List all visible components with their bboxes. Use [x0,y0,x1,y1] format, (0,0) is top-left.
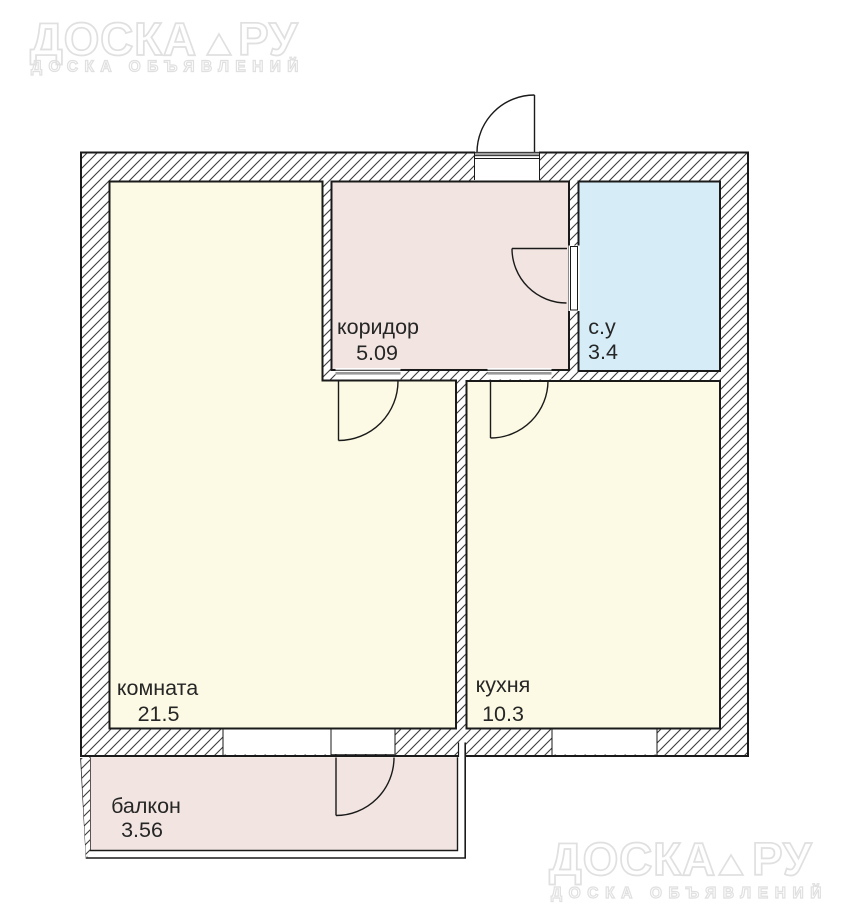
svg-text:с.у: с.у [588,315,616,339]
svg-text:3.56: 3.56 [121,818,163,842]
svg-text:кухня: кухня [476,673,531,697]
svg-text:ДОСКА: ДОСКА [549,833,716,885]
svg-text:21.5: 21.5 [138,702,180,726]
svg-text:ДОСКА: ДОСКА [30,13,197,65]
svg-text:комната: комната [117,676,198,700]
svg-text:коридор: коридор [337,315,419,339]
svg-text:3.4: 3.4 [588,340,618,364]
svg-text:РУ: РУ [238,13,299,65]
svg-text:балкон: балкон [111,794,181,818]
svg-text:5.09: 5.09 [356,341,398,365]
svg-text:РУ: РУ [752,833,813,885]
svg-text:ДОСКА ОБЪЯВЛЕНИЙ: ДОСКА ОБЪЯВЛЕНИЙ [31,58,305,76]
svg-text:ДОСКА ОБЪЯВЛЕНИЙ: ДОСКА ОБЪЯВЛЕНИЙ [551,884,828,902]
svg-text:10.3: 10.3 [482,702,524,726]
